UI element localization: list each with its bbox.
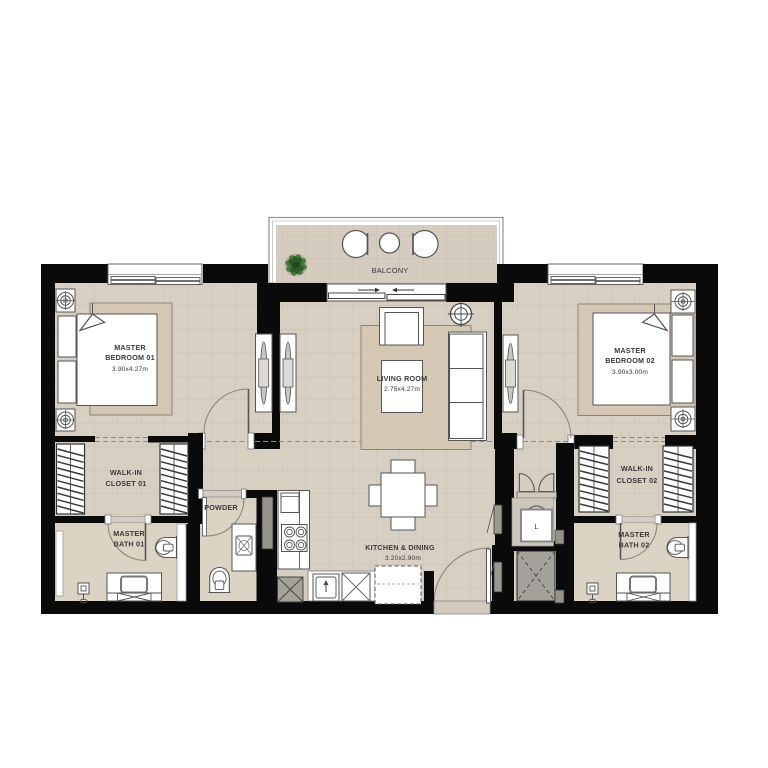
svg-text:MASTER: MASTER [114,343,146,352]
svg-text:MASTER: MASTER [614,346,646,355]
svg-text:3.90x3.00m: 3.90x3.00m [612,369,648,376]
svg-text:3.20x2.90m: 3.20x2.90m [385,555,421,562]
svg-text:BEDROOM 02: BEDROOM 02 [605,356,655,365]
svg-text:BEDROOM 01: BEDROOM 01 [105,353,155,362]
svg-text:MASTER: MASTER [618,530,650,539]
svg-text:KITCHEN & DINING: KITCHEN & DINING [365,543,435,552]
svg-text:3.90x4.27m: 3.90x4.27m [112,366,148,373]
svg-text:BALCONY: BALCONY [372,266,409,275]
svg-text:CLOSET 02: CLOSET 02 [617,476,658,485]
svg-text:L: L [534,522,538,531]
svg-text:WALK-IN: WALK-IN [621,464,653,473]
svg-text:2.75x4.27m: 2.75x4.27m [384,386,420,393]
svg-text:POWDER: POWDER [204,503,238,512]
svg-text:BATH 01: BATH 01 [114,540,145,549]
svg-text:MASTER: MASTER [113,529,145,538]
svg-text:BATH 02: BATH 02 [619,541,650,550]
svg-text:CLOSET 01: CLOSET 01 [106,479,147,488]
svg-text:LIVING ROOM: LIVING ROOM [377,374,428,383]
svg-text:WALK-IN: WALK-IN [110,468,142,477]
